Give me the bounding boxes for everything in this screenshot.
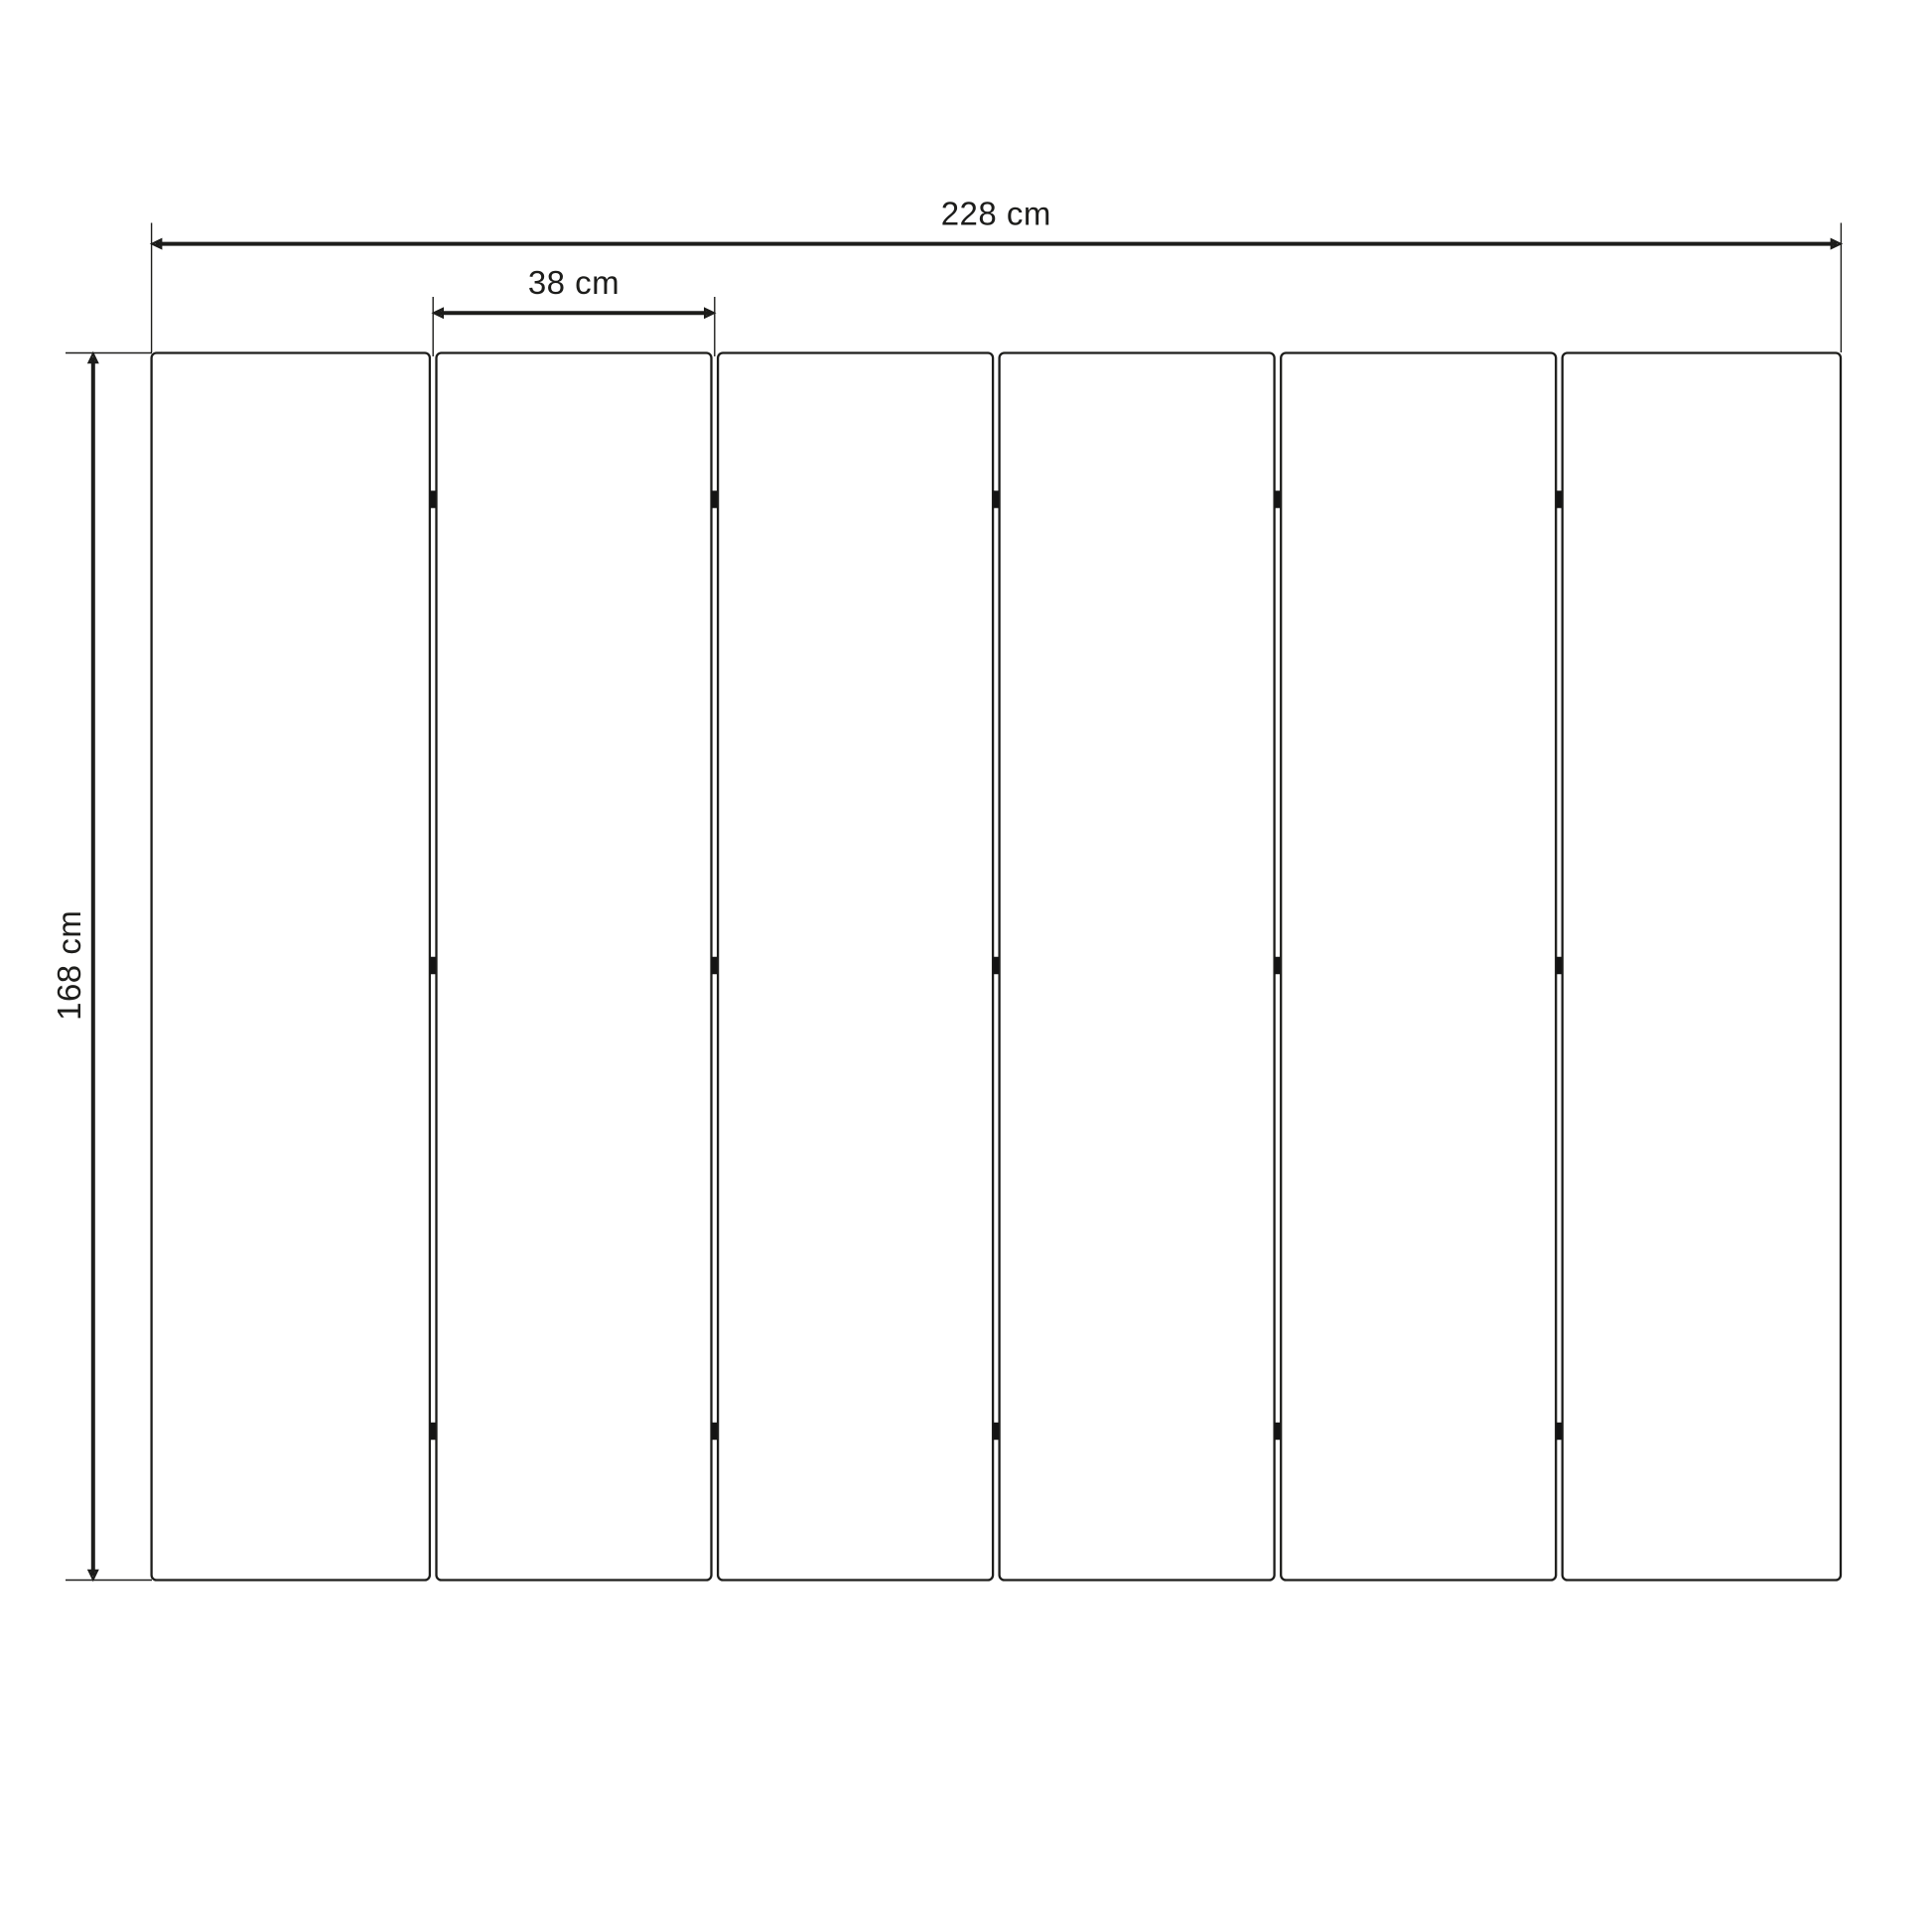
svg-text:38 cm: 38 cm xyxy=(528,264,620,301)
svg-text:168 cm: 168 cm xyxy=(51,910,87,1021)
svg-text:228 cm: 228 cm xyxy=(941,196,1051,232)
